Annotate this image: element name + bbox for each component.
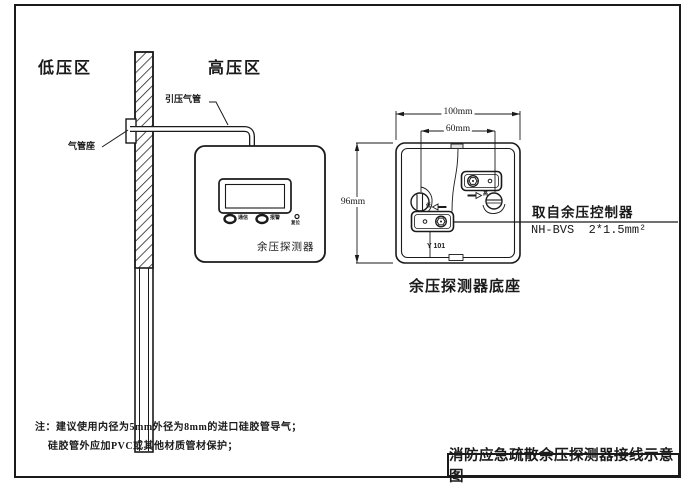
indicator-comm-label: 通信 <box>238 216 248 222</box>
zone-low-pressure: 低压区 <box>38 60 92 78</box>
page-border <box>15 5 680 477</box>
reset-label: 复位 <box>291 221 300 226</box>
wall-section <box>135 52 153 452</box>
dim-60mm-label: 60mm <box>444 124 472 134</box>
leader-lines <box>102 102 228 147</box>
wire-source-line2: NH-BVS 2*1.5mm² <box>531 224 646 237</box>
led-comm <box>225 215 236 223</box>
dim-100mm-label: 100mm <box>441 107 474 117</box>
dim-96mm-label: 96mm <box>339 197 367 207</box>
base-model: Y 101 <box>427 243 445 251</box>
note-line1: 注：建议使用内径为5mm外径为8mm的进口硅胶管导气； <box>35 422 302 433</box>
indicator-alarm-label: 报警 <box>270 216 280 222</box>
terminal-low-mark: 低 <box>426 204 431 210</box>
detector-name: 余压探测器 <box>257 242 315 254</box>
terminal-high-mark: 高 <box>483 192 488 198</box>
tube-seat-label: 气管座 <box>68 142 95 152</box>
zone-high-pressure: 高压区 <box>208 60 262 78</box>
drawing-title: 消防应急疏散余压探测器接线示意图 <box>449 444 678 486</box>
reset-hole <box>295 215 299 219</box>
drawing-canvas <box>0 0 697 490</box>
pressure-pipe-label: 引压气管 <box>165 95 201 105</box>
title-block: 消防应急疏散余压探测器接线示意图 <box>447 453 680 477</box>
led-alarm <box>257 215 268 223</box>
schematic-page: 低压区 高压区 引压气管 气管座 通信 报警 复位 余压探测器 100mm 60… <box>0 0 697 490</box>
note-line2: 硅胶管外应加PVC或其他材质管材保护； <box>48 441 238 452</box>
base-caption: 余压探测器底座 <box>409 279 521 296</box>
wire-source-line1: 取自余压控制器 <box>532 206 634 221</box>
